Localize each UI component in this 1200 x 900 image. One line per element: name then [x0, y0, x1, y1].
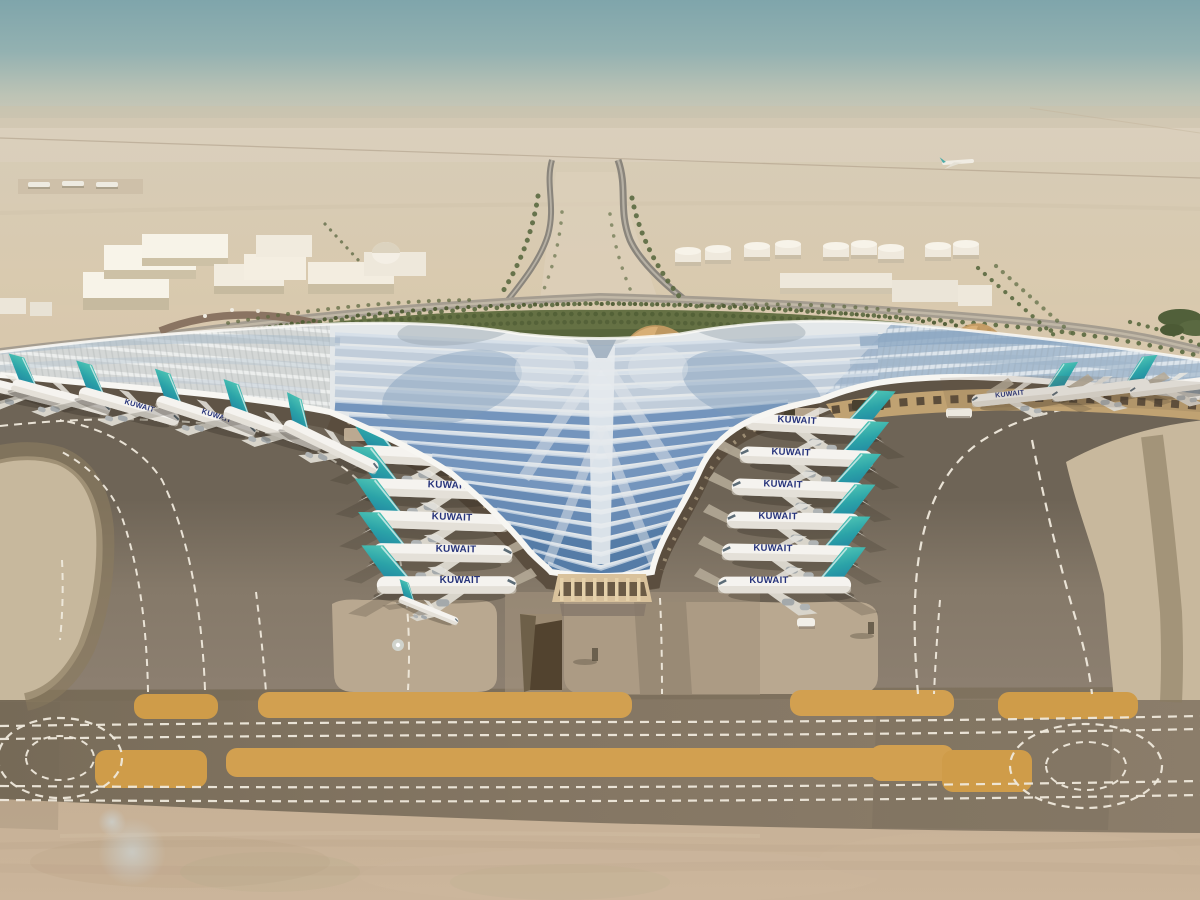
svg-text:KUWAIT: KUWAIT: [771, 446, 811, 458]
svg-text:KUWAIT: KUWAIT: [777, 414, 817, 427]
svg-text:KUWAIT: KUWAIT: [749, 575, 788, 586]
svg-text:KUWAIT: KUWAIT: [440, 575, 481, 586]
svg-text:KUWAIT: KUWAIT: [432, 511, 473, 523]
svg-text:KUWAIT: KUWAIT: [758, 511, 797, 523]
svg-text:KUWAIT: KUWAIT: [436, 544, 477, 556]
svg-text:KUWAIT: KUWAIT: [753, 543, 792, 555]
svg-text:KUWAIT: KUWAIT: [763, 478, 803, 490]
